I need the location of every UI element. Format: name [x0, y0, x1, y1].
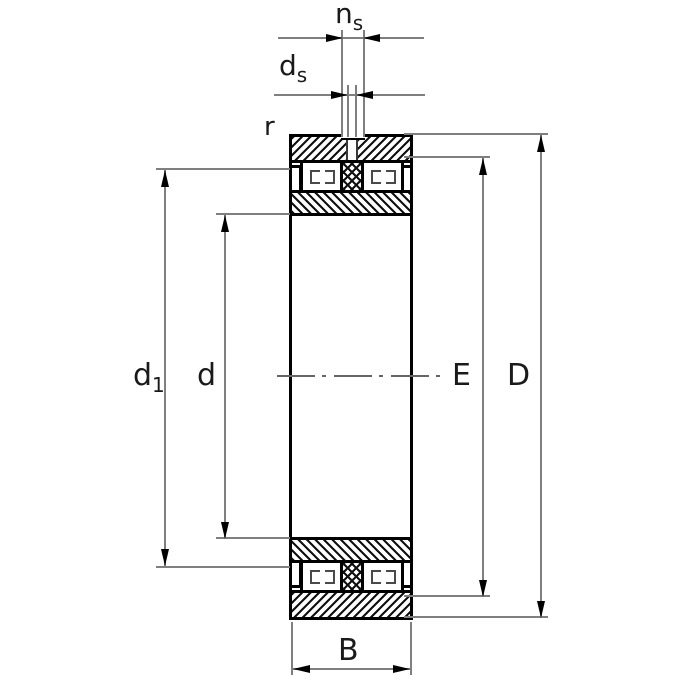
roller-top-right — [361, 160, 404, 193]
E-dimension-line — [482, 158, 484, 597]
B-arrow-icon — [293, 665, 310, 673]
d1-extension-bottom — [156, 566, 290, 568]
cage-bracket-icon — [371, 170, 381, 184]
roller-bottom-left — [300, 560, 343, 593]
ds-arrow-icon — [356, 91, 373, 99]
d-arrow-icon — [221, 215, 229, 232]
cage-bracket-icon — [386, 170, 396, 184]
E-extension-top — [404, 156, 490, 158]
d1-dimension-line — [164, 170, 166, 566]
label-E: E — [452, 361, 471, 391]
d1-arrow-icon — [161, 549, 169, 566]
cage-bracket-icon — [371, 570, 381, 584]
D-extension-bottom — [404, 616, 548, 618]
label-ds-base: d — [279, 49, 297, 82]
d1-arrow-icon — [161, 170, 169, 187]
ns-dimension-line — [278, 37, 424, 39]
E-extension-bottom — [404, 595, 490, 597]
bore-top-line — [292, 213, 410, 216]
label-ns-base: n — [335, 0, 353, 30]
label-d1-base: d — [133, 358, 152, 393]
d-arrow-icon — [221, 522, 229, 539]
label-ds-sub: s — [297, 63, 307, 87]
D-arrow-icon — [537, 135, 545, 152]
label-d1-sub: 1 — [152, 373, 165, 397]
d1-extension-top — [156, 168, 290, 170]
cage-bracket-icon — [310, 170, 320, 184]
groove-edge-line-left — [341, 30, 343, 137]
B-arrow-icon — [393, 665, 410, 673]
cage-bracket-icon — [325, 570, 335, 584]
groove-edge-line-right — [363, 30, 365, 137]
E-arrow-icon — [479, 158, 487, 175]
ds-arrow-icon — [331, 91, 348, 99]
roller-top-left — [300, 160, 343, 193]
outer-ring-bottom-section — [292, 593, 410, 617]
label-ds: ds — [279, 52, 307, 85]
bearing-dimension-drawing: ns ds r d1 d E D B — [0, 0, 680, 680]
D-dimension-line — [540, 135, 542, 618]
label-r: r — [264, 114, 275, 140]
lubrication-groove-notch — [341, 134, 365, 140]
cage-bracket-icon — [386, 570, 396, 584]
D-extension-top — [404, 133, 548, 135]
ns-arrow-icon — [363, 34, 380, 42]
label-d1: d1 — [133, 361, 165, 395]
label-B: B — [338, 636, 359, 666]
label-D: D — [507, 361, 530, 391]
ds-dimension-line — [274, 94, 425, 96]
label-ns: ns — [335, 0, 363, 33]
roller-bottom-right — [361, 560, 404, 593]
D-arrow-icon — [537, 601, 545, 618]
cage-bracket-icon — [325, 170, 335, 184]
cage-bracket-icon — [310, 570, 320, 584]
E-arrow-icon — [479, 580, 487, 597]
inner-ring-top-section — [292, 193, 410, 213]
inner-ring-bottom-section — [292, 540, 410, 560]
axis-centerline — [277, 375, 447, 377]
label-ns-sub: s — [353, 11, 363, 35]
ns-arrow-icon — [326, 34, 343, 42]
label-d: d — [197, 361, 216, 391]
lubrication-hole — [346, 137, 358, 160]
d-dimension-line — [224, 215, 226, 539]
